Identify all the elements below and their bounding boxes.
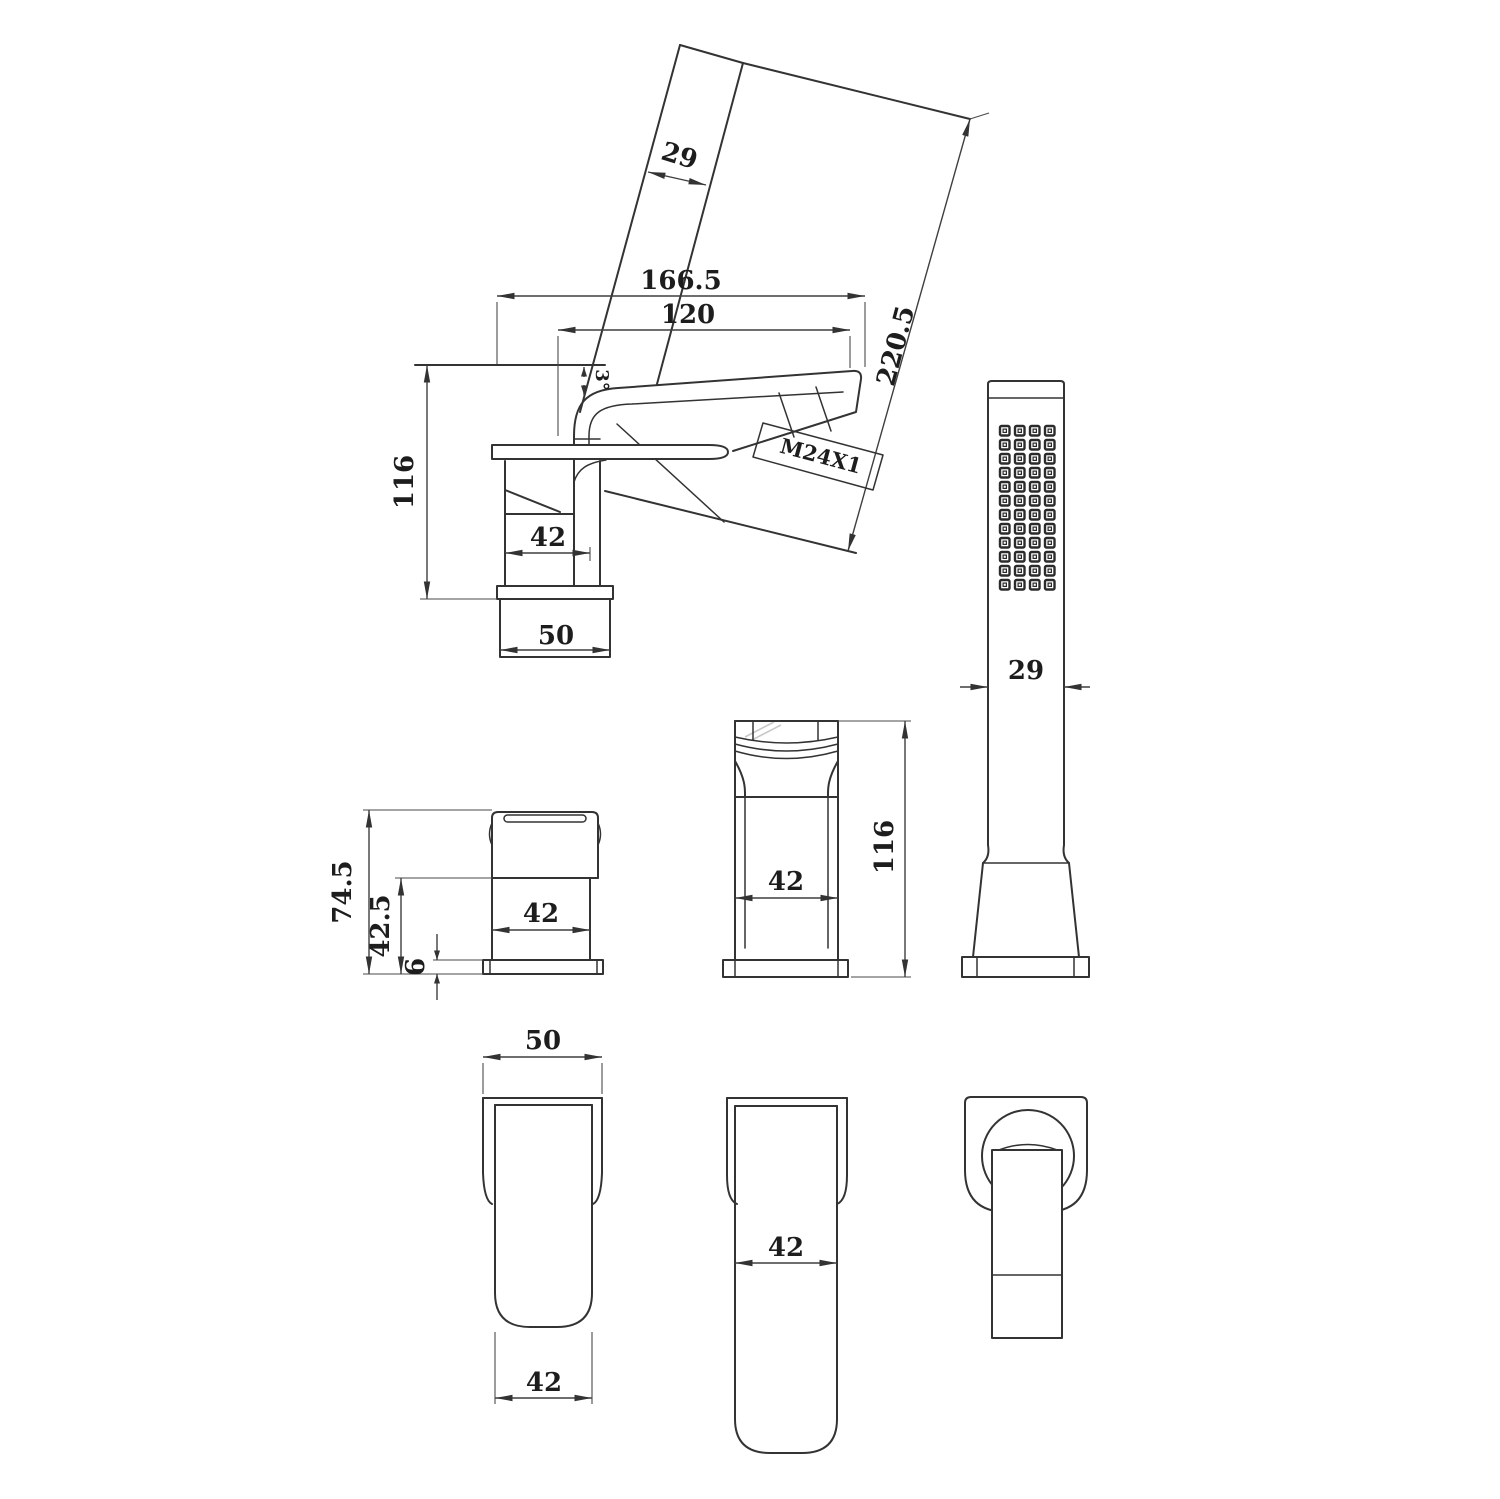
spray-nozzle [1030,482,1040,492]
spray-nozzle-center [1018,583,1021,586]
handshower-bottom-edge [605,491,856,553]
thread-label: M24X1 [777,433,864,479]
spray-nozzle-center [1048,527,1051,530]
spray-nozzle [1045,538,1055,548]
spray-nozzle-center [1018,555,1021,558]
view-handshower-front: 29 [960,381,1090,977]
spray-nozzle-center [1018,471,1021,474]
spray-nozzle-center [1003,457,1006,460]
spray-nozzle [1045,496,1055,506]
view-handle-side: 74.5 42.5 6 42 [328,810,603,1000]
dim-label-front-width: 42 [768,867,804,897]
spray-nozzle-center [1048,569,1051,572]
bodytop-outer-right [593,1098,602,1204]
spray-nozzle-center [1003,443,1006,446]
spray-nozzle [1030,440,1040,450]
spray-nozzle-center [1018,569,1021,572]
spray-grid [1000,426,1055,590]
view-body-top: 50 42 [483,1026,602,1404]
spray-nozzle-center [1018,527,1021,530]
spout-mouth-arc-1 [735,737,838,743]
front-shoulder-right [828,761,838,797]
technical-drawing-page: 29 220.5 M24X1 166.5 120 116 [0,0,1500,1499]
spray-nozzle [1015,440,1025,450]
dim-shower-width-line [648,172,706,185]
spray-nozzle [1045,440,1055,450]
dim-label-base-width: 50 [538,621,574,651]
riser-lower-bend [574,460,606,482]
spray-nozzle-center [1033,429,1036,432]
spray-nozzle [1030,580,1040,590]
spray-nozzle-center [1003,485,1006,488]
spray-nozzle-center [1048,555,1051,558]
spray-nozzle-center [1048,499,1051,502]
spray-nozzle-center [1003,527,1006,530]
spray-nozzle-center [1018,541,1021,544]
spouttop-blade-outline [735,1106,837,1453]
watermark-ghost-1 [745,722,774,737]
spray-nozzle [1030,538,1040,548]
dim-label-spouttop-width: 42 [768,1233,804,1263]
spray-nozzle-center [1033,555,1036,558]
spray-nozzle [1015,510,1025,520]
spray-nozzle [1045,566,1055,576]
spray-nozzle [1000,566,1010,576]
wand-neck-left [983,845,988,863]
spray-nozzle [1030,510,1040,520]
front-base-plate [723,960,848,977]
spray-nozzle [1015,580,1025,590]
spout-mouth-arc-3 [735,751,838,759]
spray-nozzle [1015,482,1025,492]
spray-nozzle-center [1048,513,1051,516]
spray-nozzle-center [1033,513,1036,516]
front-shoulder-left [735,761,745,797]
spray-nozzle [1030,566,1040,576]
spray-nozzle [1030,524,1040,534]
spray-nozzle-center [1018,429,1021,432]
view-handshower-profile: 29 220.5 [580,45,989,553]
spray-nozzle [1000,538,1010,548]
spray-nozzle-center [1003,541,1006,544]
spray-nozzle [1015,566,1025,576]
dim-label-shower-length: 220.5 [871,303,921,389]
spray-nozzle-center [1018,513,1021,516]
spray-nozzle [1045,524,1055,534]
handle-lever-blade [492,445,728,459]
spray-nozzle-center [1033,541,1036,544]
dim-label-valve-total-height: 74.5 [328,860,358,923]
cone-right-edge [1069,863,1079,957]
spray-nozzle [1045,510,1055,520]
spouttop-cap-right [837,1098,847,1204]
spray-nozzle [1045,482,1055,492]
spray-nozzle-center [1003,555,1006,558]
spray-nozzle [1000,510,1010,520]
spray-nozzle-center [1018,443,1021,446]
spray-nozzle [1030,454,1040,464]
spray-nozzle-center [1003,513,1006,516]
shower-base-plate [962,957,1089,977]
valve-cap-bar [504,815,586,822]
spray-nozzle [1000,468,1010,478]
spray-nozzle-center [1033,499,1036,502]
spray-nozzle [1000,440,1010,450]
spray-nozzle-center [1033,485,1036,488]
spray-nozzle-center [1018,457,1021,460]
dim-label-front-height: 116 [870,820,900,874]
dim-label-plate-thickness: 6 [401,958,431,976]
spray-nozzle-center [1033,583,1036,586]
spray-nozzle-center [1033,457,1036,460]
spray-nozzle-center [1033,443,1036,446]
view-spout-top: 42 [727,1098,847,1453]
spray-nozzle [1015,496,1025,506]
spray-nozzle-center [1033,527,1036,530]
spray-nozzle [1000,426,1010,436]
body-shoulder-slope [505,490,560,512]
spray-nozzle-center [1048,583,1051,586]
spray-nozzle [1045,552,1055,562]
cone-left-edge [973,863,983,957]
spray-nozzle [1000,524,1010,534]
view-faucet-front: 42 116 [723,721,911,977]
spray-nozzle-center [1018,485,1021,488]
spray-nozzle-center [1048,485,1051,488]
bodytop-inner-outline [495,1105,592,1327]
spray-nozzle-center [1003,471,1006,474]
handshower-head-inner-edge [657,63,743,384]
spout-inner-line [589,392,843,436]
dim-label-overall-reach: 166.5 [640,266,721,296]
dim-label-spout-angle: 3° [591,369,612,391]
spray-nozzle-center [1048,429,1051,432]
valve-cap-outline [492,812,598,845]
spray-nozzle [1000,496,1010,506]
spray-nozzle [1015,454,1025,464]
dim-label-bodytop-inner: 42 [526,1368,562,1398]
spray-nozzle [1030,552,1040,562]
spray-nozzle-center [1033,471,1036,474]
view-handle-top [965,1097,1087,1338]
spray-nozzle-center [1048,471,1051,474]
spray-nozzle-center [1018,499,1021,502]
spray-nozzle [1045,454,1055,464]
view-faucet-side: M24X1 166.5 120 116 42 50 3° [390,266,883,657]
spray-nozzle [1000,552,1010,562]
spray-nozzle-center [1033,569,1036,572]
spray-nozzle-center [1003,429,1006,432]
spout-mouth-arc-2 [735,744,838,751]
spray-nozzle [1000,482,1010,492]
spray-nozzle-center [1048,457,1051,460]
wand-neck-right [1064,845,1069,863]
spray-nozzle-center [1003,499,1006,502]
handshower-top-edge [680,45,970,119]
spray-nozzle-center [1048,541,1051,544]
dim-shower-length-ext [970,113,989,119]
spray-nozzle [1000,454,1010,464]
dim-label-body-width: 42 [530,523,566,553]
handle-lever-top [992,1150,1062,1338]
watermark-ghost-2 [752,725,781,740]
spray-nozzle [1015,538,1025,548]
spray-nozzle [1015,524,1025,534]
dim-label-shower-head-width: 29 [658,137,701,176]
spray-nozzle-center [1003,569,1006,572]
spray-nozzle [1015,426,1025,436]
spray-nozzle [1000,580,1010,590]
spray-nozzle [1030,468,1040,478]
faucet-dimension-drawing: 29 220.5 M24X1 166.5 120 116 [0,0,1500,1499]
spout-outline [574,371,861,451]
spray-nozzle [1015,468,1025,478]
spray-nozzle-center [1003,583,1006,586]
spray-nozzle-center [1048,443,1051,446]
spray-nozzle [1045,426,1055,436]
dim-label-valve-width: 42 [523,899,559,929]
spray-nozzle [1030,426,1040,436]
valve-base-plate [483,960,603,974]
base-flange [497,586,613,599]
dim-label-bodytop-outer: 50 [525,1026,561,1056]
spray-nozzle [1045,580,1055,590]
dim-label-wand-width: 29 [1008,656,1044,686]
dim-label-height: 116 [390,455,420,509]
spray-nozzle [1045,468,1055,478]
dim-label-spout-reach: 120 [661,300,715,330]
spray-nozzle [1030,496,1040,506]
dim-label-valve-body-height: 42.5 [366,894,396,957]
spray-nozzle [1015,552,1025,562]
bodytop-outer-left [483,1098,492,1204]
